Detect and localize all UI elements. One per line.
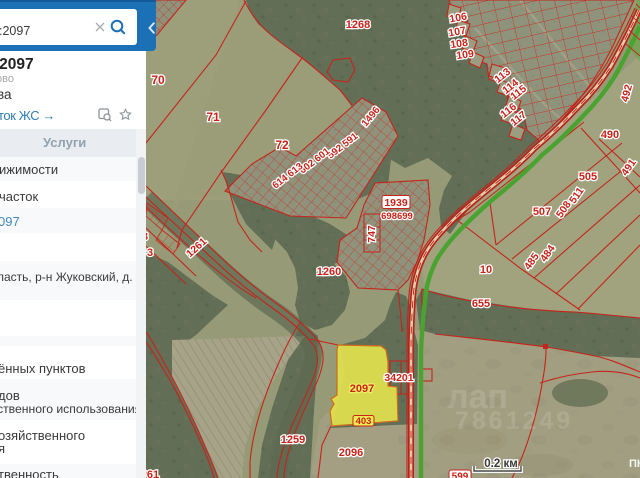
svg-text:747: 747	[366, 225, 378, 243]
svg-text:7861249: 7861249	[455, 407, 573, 435]
svg-text:2097: 2097	[350, 383, 374, 395]
svg-text:655: 655	[472, 298, 490, 310]
svg-text:403: 403	[356, 416, 372, 427]
svg-text:698699: 698699	[381, 211, 413, 222]
svg-text:599: 599	[452, 472, 469, 478]
svg-text:10: 10	[480, 264, 492, 276]
svg-text:1939: 1939	[384, 197, 408, 209]
svg-text:0.2 км: 0.2 км	[484, 458, 517, 470]
svg-text:1259: 1259	[281, 434, 305, 446]
svg-text:1260: 1260	[317, 266, 341, 278]
svg-text:72: 72	[275, 138, 289, 152]
svg-text:109: 109	[456, 48, 475, 62]
svg-text:505: 505	[579, 171, 597, 183]
svg-text:507: 507	[533, 206, 551, 218]
svg-text:1268: 1268	[346, 19, 370, 31]
svg-text:70: 70	[151, 73, 165, 87]
svg-text:2096: 2096	[339, 447, 363, 459]
svg-text:71: 71	[206, 110, 220, 124]
svg-text:ПК: ПК	[629, 458, 640, 470]
svg-text:3: 3	[147, 247, 153, 259]
svg-text:34201: 34201	[384, 372, 413, 384]
svg-text:490: 490	[601, 129, 619, 141]
